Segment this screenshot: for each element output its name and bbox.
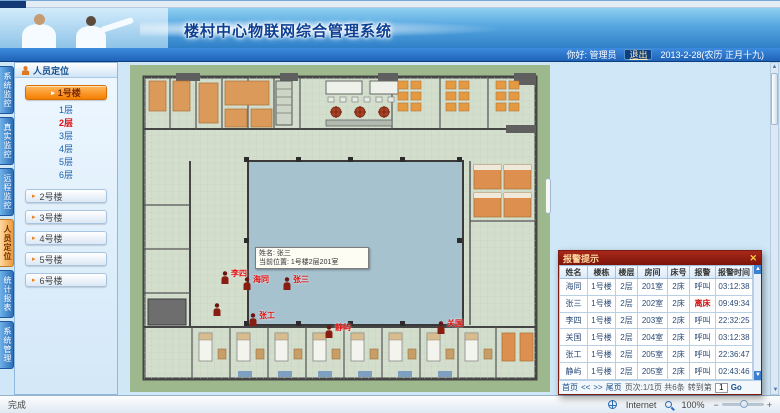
scroll-up-icon[interactable]: ▲ [771,63,778,71]
building-label: 2号楼 [40,190,63,203]
table-cell: 22:36:47 [716,346,753,363]
photo-pointing-arm [100,17,134,33]
table-cell: 1号楼 [588,363,616,380]
network-zone-label: Internet [626,400,657,410]
browser-corner [0,1,26,8]
table-cell: 1号楼 [588,279,616,296]
vtab-系统监控[interactable]: 系统监控 [0,66,14,114]
triangle-icon: ▸ [32,255,36,263]
column-header: 楼栋 [588,266,616,279]
person-marker[interactable]: 张三 [282,277,309,290]
triangle-icon: ▸ [32,234,36,242]
column-header: 报警 [690,266,716,279]
last-page-link[interactable]: 尾页 [606,382,622,393]
table-cell: 03:12:38 [716,329,753,346]
table-cell: 呼叫 [690,279,716,296]
plan-scrollbar-thumb[interactable] [545,178,551,214]
pagination-bar: 首页 << >> 尾页 页次:1/1页 共6条 转到第 Go [559,380,761,394]
person-marker[interactable] [212,303,222,316]
table-cell: 张工 [560,346,588,363]
column-header: 楼层 [616,266,638,279]
building-button[interactable]: ▸5号楼 [25,252,107,266]
vtab-人员定位[interactable]: 人员定位 [0,219,14,267]
table-cell: 2层 [616,279,638,296]
person-label: 关国 [447,318,463,329]
internet-globe-icon [608,400,617,409]
alarm-table-head: 姓名楼栋楼层房间床号报警报警时间 [560,266,753,279]
table-cell: 张三 [560,295,588,312]
page-info: 页次:1/1页 共6条 [625,382,685,393]
scroll-up-icon[interactable]: ▲ [754,265,762,274]
vtab-统计报表[interactable]: 统计报表 [0,270,14,318]
scrollbar-thumb[interactable] [771,73,778,125]
goto-page-input[interactable] [715,383,728,393]
alarm-popup: 报警提示 ✕ 姓名楼栋楼层房间床号报警报警时间 海同1号楼2层201室2床呼叫0… [558,250,762,395]
person-tooltip: 姓名: 张三 当前位置: 1号楼2层201室 [255,247,369,269]
person-icon [220,271,230,284]
building-button[interactable]: ▸6号楼 [25,273,107,287]
person-marker[interactable]: 张工 [248,313,275,326]
table-cell: 02:43:46 [716,363,753,380]
table-cell: 静屿 [560,363,588,380]
table-cell: 2层 [616,363,638,380]
person-icon [436,321,446,334]
table-cell: 2床 [668,329,690,346]
browser-top-strip [0,0,780,8]
table-row[interactable]: 李四1号楼2层203室2床呼叫22:32:25 [560,312,753,329]
zoom-out-icon[interactable]: − [713,400,718,410]
table-cell: 203室 [638,312,668,329]
popup-title-bar[interactable]: 报警提示 ✕ [559,251,761,265]
table-cell: 2层 [616,346,638,363]
table-row[interactable]: 张工1号楼2层205室2床呼叫22:36:47 [560,346,753,363]
go-button[interactable]: Go [731,383,742,392]
table-cell: 呼叫 [690,329,716,346]
table-cell: 2层 [616,312,638,329]
building-button[interactable]: ▸3号楼 [25,210,107,224]
browser-status-bar: 完成 Internet 100% − + [0,395,780,413]
building-label: 5号楼 [40,253,63,266]
photo-person-head [86,16,96,26]
app-banner: 楼村中心物联网综合管理系统 [0,8,780,48]
column-header: 房间 [638,266,668,279]
table-cell: 1号楼 [588,295,616,312]
person-icon [212,303,222,316]
vertical-tabs: 系统监控真实监控远程监控人员定位统计报表系统管理 [0,66,14,369]
person-icon [282,277,292,290]
table-cell: 2床 [668,363,690,380]
building-list: ▸2号楼▸3号楼▸4号楼▸5号楼▸6号楼 [15,189,117,287]
column-header: 报警时间 [716,266,753,279]
popup-title: 报警提示 [563,252,599,265]
building-label: 1号楼 [58,86,81,99]
sidebar-header-label: 人员定位 [33,64,69,77]
header-row: 姓名楼栋楼层房间床号报警报警时间 [560,266,753,279]
table-row[interactable]: 张三1号楼2层202室2床离床09:49:34 [560,295,753,312]
alarm-table: 姓名楼栋楼层房间床号报警报警时间 海同1号楼2层201室2床呼叫03:12:38… [559,265,753,380]
table-cell: 09:49:34 [716,295,753,312]
tooltip-line2: 当前位置: 1号楼2层201室 [259,258,365,267]
user-greeting: 你好: 管理员 [566,48,616,61]
sidebar-header: 人员定位 [15,63,117,78]
browser-scrollbar[interactable]: ▲ ▼ [770,62,779,395]
table-cell: 2床 [668,312,690,329]
app-window: { "header": { "title": "楼村中心物联网综合管理系统", … [0,0,780,413]
table-cell: 关国 [560,329,588,346]
status-right-cluster: Internet 100% − + [608,400,772,410]
first-page-link[interactable]: 首页 [562,382,578,393]
floor-item[interactable]: 4层 [59,143,73,156]
next-page-link[interactable]: >> [593,383,602,392]
photo-person-head [34,14,45,25]
vtab-系统管理[interactable]: 系统管理 [0,321,14,369]
triangle-icon: ▸ [51,89,55,97]
person-marker[interactable]: 关国 [436,321,463,334]
person-icon [242,277,252,290]
table-cell: 呼叫 [690,363,716,380]
app-title: 楼村中心物联网综合管理系统 [184,20,392,41]
floor-item[interactable]: 6层 [59,169,73,182]
floor-item[interactable]: 1层 [59,104,73,117]
table-cell: 离床 [690,295,716,312]
person-marker[interactable]: 静屿 [324,325,351,338]
popup-scrollbar[interactable]: ▲ ▼ [753,265,761,380]
building-label: 6号楼 [40,274,63,287]
popup-body: 姓名楼栋楼层房间床号报警报警时间 海同1号楼2层201室2床呼叫03:12:38… [559,265,761,380]
sub-header-bar: 你好: 管理员 退出 2013-2-28(农历 正月十九) [0,48,780,62]
table-row[interactable]: 静屿1号楼2层205室2床呼叫02:43:46 [560,363,753,380]
table-cell: 205室 [638,363,668,380]
triangle-icon: ▸ [32,276,36,284]
status-text: 完成 [8,398,26,411]
person-label: 张三 [293,274,309,285]
close-icon[interactable]: ✕ [749,253,757,264]
triangle-icon: ▸ [32,192,36,200]
table-cell: 李四 [560,312,588,329]
logout-button[interactable]: 退出 [624,49,652,60]
zoom-slider-track[interactable] [722,403,764,406]
table-cell: 03:12:38 [716,279,753,296]
column-header: 姓名 [560,266,588,279]
table-cell: 海同 [560,279,588,296]
prev-page-link[interactable]: << [581,383,590,392]
tooltip-line1: 姓名: 张三 [259,249,365,258]
zoom-level: 100% [681,400,704,410]
zoom-slider[interactable]: − + [713,400,772,410]
table-cell: 1号楼 [588,346,616,363]
person-label: 张工 [259,310,275,321]
table-row[interactable]: 关国1号楼2层204室2床呼叫03:12:38 [560,329,753,346]
table-cell: 1号楼 [588,312,616,329]
person-icon [324,325,334,338]
floorplan-svg [130,65,550,392]
building-label: 4号楼 [40,232,63,245]
goto-label: 转到第 [688,382,712,393]
floor-item[interactable]: 3层 [59,130,73,143]
table-cell: 22:32:25 [716,312,753,329]
person-label: 静屿 [335,322,351,333]
column-header: 床号 [668,266,690,279]
floor-item[interactable]: 2层 [59,117,73,130]
table-cell: 2床 [668,295,690,312]
scroll-down-icon[interactable]: ▼ [754,371,762,380]
table-cell: 2床 [668,346,690,363]
vtab-远程监控[interactable]: 远程监控 [0,168,14,216]
zoom-in-icon[interactable]: + [767,400,772,410]
stairwell [276,81,292,125]
table-cell: 2床 [668,279,690,296]
building-button[interactable]: ▸4号楼 [25,231,107,245]
table-cell: 204室 [638,329,668,346]
table-cell: 呼叫 [690,346,716,363]
table-cell: 201室 [638,279,668,296]
photo-person-body [22,24,56,48]
red-chairs [330,106,390,118]
table-cell: 205室 [638,346,668,363]
alarm-table-body: 海同1号楼2层201室2床呼叫03:12:38张三1号楼2层202室2床离床09… [560,279,753,380]
building-label: 3号楼 [40,211,63,224]
person-icon [248,313,258,326]
zoom-magnifier-icon [665,401,672,408]
sidebar-panel: 人员定位 ▸ 1号楼 1层2层3层4层5层6层 ▸2号楼▸3号楼▸4号楼▸5号楼… [14,62,118,395]
building-button-selected[interactable]: ▸ 1号楼 [25,85,107,100]
table-cell: 1号楼 [588,329,616,346]
floorplan-viewport[interactable]: 姓名: 张三 当前位置: 1号楼2层201室 李四海同张三张工静屿关国 [130,65,550,392]
building-button[interactable]: ▸2号楼 [25,189,107,203]
table-cell: 2层 [616,329,638,346]
vtab-真实监控[interactable]: 真实监控 [0,117,14,165]
zoom-slider-thumb[interactable] [740,400,748,408]
courtyard [244,157,463,326]
scroll-down-icon[interactable]: ▼ [772,386,779,394]
table-cell: 2层 [616,295,638,312]
date-display: 2013-2-28(农历 正月十九) [660,48,764,61]
table-cell: 202室 [638,295,668,312]
table-row[interactable]: 海同1号楼2层201室2床呼叫03:12:38 [560,279,753,296]
table-cell: 呼叫 [690,312,716,329]
person-label: 海同 [253,274,269,285]
triangle-icon: ▸ [32,213,36,221]
floor-item[interactable]: 5层 [59,156,73,169]
floor-list: 1层2层3层4层5层6层 [15,104,117,182]
person-icon [21,66,30,75]
person-marker[interactable]: 海同 [242,277,269,290]
